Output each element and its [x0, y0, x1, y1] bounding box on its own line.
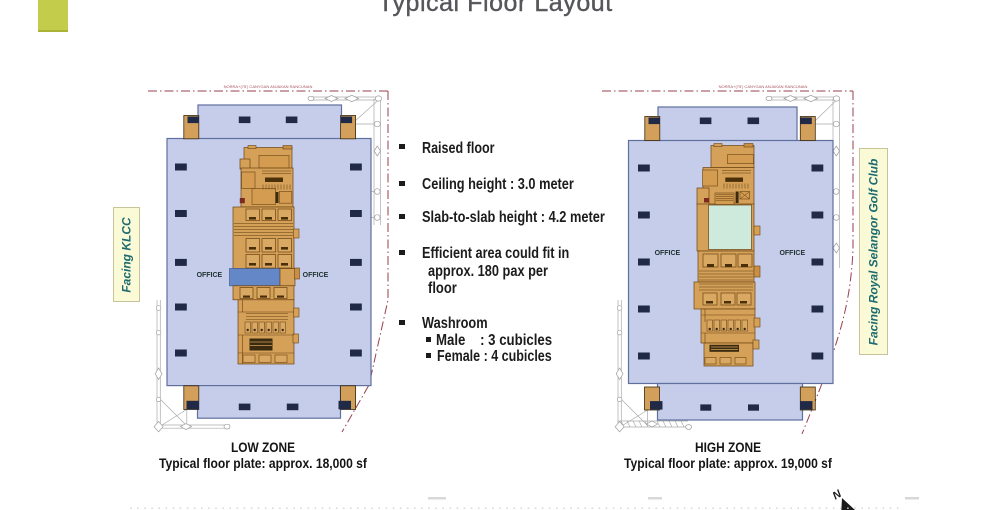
svg-text:OFFICE: OFFICE: [655, 250, 681, 257]
svg-text:OFFICE: OFFICE: [197, 272, 223, 279]
svg-text:OFFICE: OFFICE: [779, 250, 805, 257]
svg-text:OFFICE: OFFICE: [303, 272, 329, 279]
svg-text:NORRA+(75') CANYGAN ANJAKAN: NORRA+(75') CANYGAN ANJAKAN RANCUNAN: [719, 84, 808, 89]
svg-text:NORRA+(75') CANYGAN ANJAKAN: NORRA+(75') CANYGAN ANJAKAN RANCUNAN: [224, 84, 313, 89]
